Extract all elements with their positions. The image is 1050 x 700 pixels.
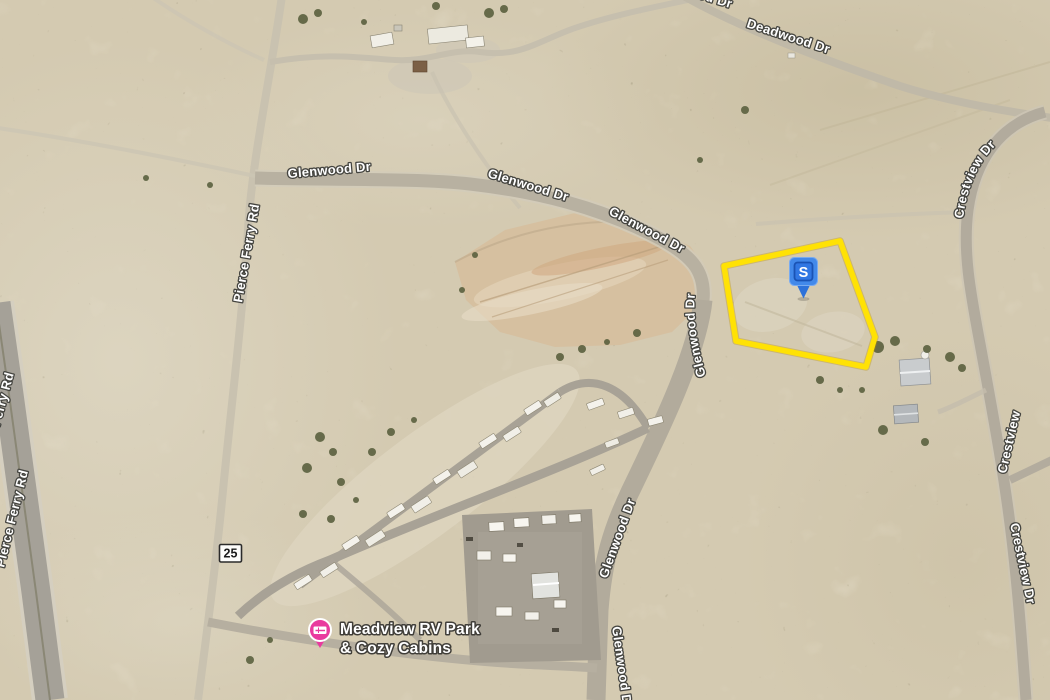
poi-name-line2: & Cozy Cabins	[340, 640, 451, 657]
route-shield-number: 25	[224, 547, 238, 561]
poi-name-line1: Meadview RV Park	[340, 621, 480, 638]
satellite-map-canvas[interactable]: Glenwood Dr Glenwood Dr Glenwood Dr Glen…	[0, 0, 1050, 700]
route-shield-25: 25	[220, 545, 242, 563]
rv-park-compound	[462, 509, 601, 663]
main-building	[531, 572, 560, 599]
parcel-pin-letter: S	[799, 265, 809, 281]
